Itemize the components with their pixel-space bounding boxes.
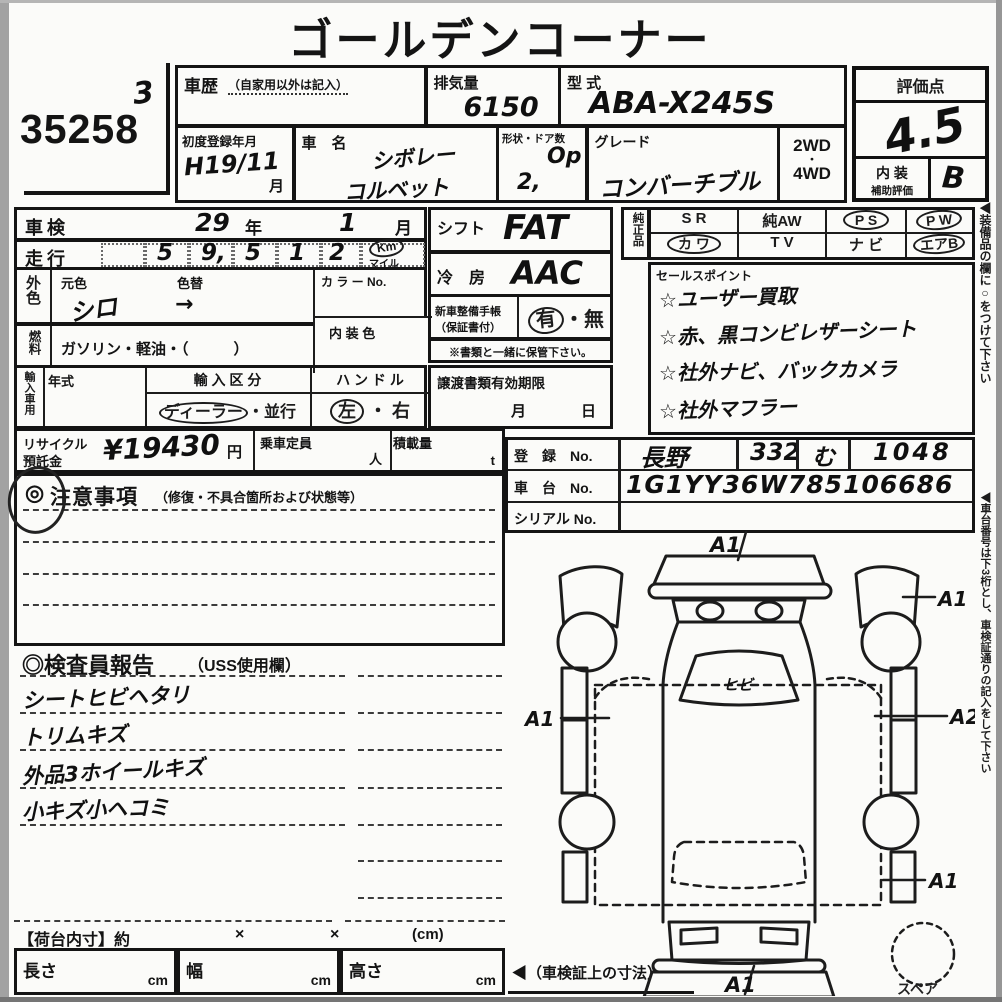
equipment-row-1: S R 純AW P S P W bbox=[651, 210, 972, 234]
field-fuel: 燃料 ガソリン・軽油・（ ） 内 装 色 bbox=[14, 323, 427, 368]
cautions-box: ◎ 注意事項 （修復・不具合箇所および状態等） bbox=[14, 473, 505, 646]
side-note-2: ◀車台番号は下3桁とし、車検証通りの記入をして下さい bbox=[979, 492, 1000, 802]
field-car-name: 車 名 シボレー コルベット bbox=[293, 125, 499, 203]
field-transfer-docs: 譲渡書類有効期限 月 日 bbox=[428, 365, 613, 429]
report-line bbox=[358, 787, 502, 789]
sales-points-box: セールスポイント ☆ユーザー買取 ☆赤、黒コンビレザーシート ☆社外ナビ、バック… bbox=[648, 262, 975, 435]
divider bbox=[618, 440, 621, 469]
auction-number: 35258 bbox=[20, 106, 139, 153]
sales-item: ☆ユーザー買取 bbox=[659, 280, 797, 314]
reg-kana: む bbox=[812, 438, 835, 472]
load-cell: 積載量 t bbox=[388, 431, 503, 470]
equip-airbag-circled: エアB bbox=[913, 232, 966, 256]
scan-edge-top bbox=[0, 0, 1002, 3]
report-line bbox=[358, 749, 502, 751]
times-sign: × bbox=[330, 926, 339, 944]
interior-color-cell: 内 装 色 bbox=[313, 316, 432, 373]
car-name-1: シボレー bbox=[369, 138, 455, 175]
color-change-value: → bbox=[175, 292, 193, 317]
import-label-cell: 輸入車用 bbox=[17, 368, 45, 426]
ruled-line bbox=[345, 920, 505, 922]
shaken-month: 1 bbox=[339, 208, 356, 237]
import-dealer-circled: ディーラー bbox=[159, 402, 248, 424]
body-doors-opt: Op bbox=[547, 144, 581, 169]
grade-value: コンバーチブル bbox=[598, 161, 761, 203]
field-recycle: リサイクル 預託金 ¥19430 円 乗車定員 人 積載量 t bbox=[14, 428, 505, 473]
field-body-doors: 形状・ドア数 Op 2, bbox=[496, 125, 588, 203]
length-cell: 長さ cm bbox=[14, 948, 177, 995]
divider bbox=[618, 471, 621, 501]
mileage-digit: 5 bbox=[157, 240, 173, 266]
year-type-cell: 年式 bbox=[43, 368, 147, 426]
width-cell: 幅 cm bbox=[177, 948, 340, 995]
equip-airbag: エアB bbox=[907, 234, 972, 258]
ruled-line bbox=[14, 920, 332, 922]
sales-item: ☆社外マフラー bbox=[659, 391, 798, 425]
handle-value: 左 ・ 右 bbox=[310, 397, 430, 424]
field-service-book: 新車整備手帳 （保証書付） 有・無 bbox=[428, 294, 613, 340]
book-yes-circled: 有 bbox=[527, 305, 566, 336]
shift-value: FAT bbox=[503, 208, 568, 248]
times-sign: × bbox=[235, 926, 244, 944]
field-displacement: 排気量 6150 bbox=[425, 65, 561, 127]
fuel-value: ガソリン・軽油・（ ） bbox=[61, 338, 249, 359]
handle-left-circled: 左 bbox=[330, 399, 364, 424]
equip-pw: P W bbox=[907, 210, 972, 232]
book-value: 有・無 bbox=[517, 297, 613, 337]
reg-area: 長野 bbox=[640, 438, 688, 473]
report-line bbox=[358, 712, 502, 714]
registration-box: 登 録 No. 長野 332 む 1048 車 台 No. 1G1YY36W78… bbox=[505, 437, 975, 533]
score-label: 評価点 bbox=[856, 70, 985, 103]
field-mileage: 走行 5 9, 5 1 2 Km マイル bbox=[14, 239, 427, 270]
equip-ps: P S bbox=[827, 210, 907, 232]
field-grade: グレード コンバーチブル bbox=[586, 125, 780, 203]
report-line bbox=[358, 824, 502, 826]
equip-ps-circled: P S bbox=[843, 210, 889, 230]
field-ac: 冷 房 AAC bbox=[428, 251, 613, 297]
ruled-line bbox=[23, 573, 495, 575]
recycle-value: ¥19430 bbox=[102, 427, 220, 466]
equip-aw: 純AW bbox=[739, 210, 827, 232]
interior-row: 内 装 補助評価 B bbox=[856, 156, 986, 202]
divider bbox=[736, 440, 739, 469]
damage-mark-rear: A1 bbox=[723, 973, 756, 996]
report-line bbox=[358, 897, 502, 899]
ac-value: AAC bbox=[511, 254, 583, 292]
bracket-hline bbox=[24, 191, 170, 195]
report-line bbox=[20, 675, 345, 677]
auction-sheet: ゴールデンコーナー 3 35258 車歴 （自家用以外は記入） 排気量 6150… bbox=[0, 0, 1002, 1002]
report-item: トリムキズ bbox=[22, 718, 128, 752]
equipment-grid: S R 純AW P S P W カ ワ T V ナ ビ エアB bbox=[648, 207, 975, 260]
divider bbox=[848, 440, 851, 469]
divider bbox=[618, 503, 621, 531]
inspector-report: ◎検査員報告 （USS使用欄） シートヒビヘタリ トリムキズ 外品3ホイールキズ… bbox=[0, 648, 505, 918]
height-cell: 高さ cm bbox=[340, 948, 505, 995]
field-model-code: 型 式 ABA-X245S bbox=[558, 65, 847, 127]
windshield-crack-note: ヒビ bbox=[723, 676, 755, 694]
reg-number: 1048 bbox=[873, 438, 952, 466]
field-history: 車歴 （自家用以外は記入） bbox=[175, 65, 427, 127]
import-class-cell: 輸 入 区 分 ディーラー・並行 bbox=[145, 368, 312, 426]
equip-navi: ナ ビ bbox=[827, 234, 907, 258]
sales-item: ☆社外ナビ、バックカメラ bbox=[659, 353, 897, 386]
genuine-label-cell: 純正品 bbox=[621, 207, 650, 260]
field-import: 輸入車用 年式 輸 入 区 分 ディーラー・並行 ハ ン ド ル 左 ・ 右 bbox=[14, 365, 427, 429]
body-doors-num: 2, bbox=[517, 170, 541, 195]
spare-label: スペア bbox=[897, 981, 938, 996]
cargo-label: 【荷台内寸】約 bbox=[18, 926, 130, 950]
chassis-value: 1G1YY36W785106686 bbox=[626, 470, 953, 499]
damage-mark-right-front: A1 bbox=[936, 587, 967, 611]
car-damage-diagram: A1 A1 A1 A2 A1 A1 ヒビ スペア bbox=[503, 530, 975, 996]
keep-note: ※書類と一緒に保管下さい。 bbox=[428, 338, 613, 363]
mileage-digit: 1 bbox=[289, 240, 305, 266]
interior-value: B bbox=[941, 160, 966, 197]
report-item: 小キズ小ヘコミ bbox=[22, 791, 170, 826]
equip-tv: T V bbox=[739, 234, 827, 258]
color-no-cell: カ ラ ー No. bbox=[313, 270, 432, 322]
bracket-vline bbox=[166, 63, 170, 195]
shaken-year: 29 bbox=[195, 208, 230, 237]
scan-edge-bottom bbox=[0, 997, 1002, 1002]
divider bbox=[796, 440, 799, 469]
equip-sr: S R bbox=[651, 210, 739, 232]
equip-kawa: カ ワ bbox=[651, 234, 739, 258]
ruled-line bbox=[23, 509, 495, 511]
capacity-cell: 乗車定員 人 bbox=[253, 431, 392, 470]
sales-item: ☆赤、黒コンビレザーシート bbox=[659, 313, 917, 351]
sheet-title: ゴールデンコーナー bbox=[200, 4, 800, 68]
damage-mark-front: A1 bbox=[708, 533, 741, 557]
report-item: シートヒビヘタリ bbox=[22, 679, 191, 715]
digit-cell bbox=[101, 243, 145, 267]
displacement-value: 6150 bbox=[464, 92, 539, 123]
damage-mark-left: A1 bbox=[523, 707, 554, 731]
field-first-registration: 初度登録年月 H19/11 月 bbox=[175, 125, 295, 203]
field-drive: 2WD ・ 4WD bbox=[777, 125, 847, 203]
handle-cell: ハ ン ド ル 左 ・ 右 bbox=[310, 368, 430, 426]
fuel-label-cell: 燃料 bbox=[17, 326, 52, 365]
mileage-digit: 2 bbox=[329, 240, 345, 266]
reg-row: 登 録 No. 長野 332 む 1048 bbox=[508, 440, 972, 471]
damage-mark-right: A2 bbox=[948, 705, 975, 729]
report-item: 外品3ホイールキズ bbox=[21, 751, 205, 791]
mileage-digit: 9, bbox=[201, 240, 226, 266]
ruled-line bbox=[23, 541, 495, 543]
report-line bbox=[358, 675, 502, 677]
score-box: 評価点 4.5 内 装 補助評価 B bbox=[852, 66, 989, 202]
equip-pw-circled: P W bbox=[916, 208, 964, 232]
reg-class: 332 bbox=[750, 438, 800, 466]
serial-row: シリアル No. bbox=[508, 503, 972, 531]
mileage-digit: 5 bbox=[245, 240, 261, 266]
ruled-line bbox=[23, 604, 495, 606]
field-shaken: 車検 29 年 1 月 bbox=[14, 207, 427, 241]
report-line bbox=[358, 860, 502, 862]
interior-label-cell: 内 装 補助評価 bbox=[856, 159, 931, 202]
import-class-value: ディーラー・並行 bbox=[145, 398, 310, 424]
damage-mark-right-rear: A1 bbox=[927, 869, 958, 893]
equip-kawa-circled: カ ワ bbox=[667, 234, 721, 254]
ext-color-label-cell: 外色 bbox=[17, 270, 52, 322]
field-shift: シフト FAT bbox=[428, 207, 613, 253]
model-code-value: ABA-X245S bbox=[589, 86, 775, 121]
history-note: （自家用以外は記入） bbox=[228, 76, 348, 95]
car-name-2: コルベット bbox=[343, 171, 449, 206]
first-reg-value: H19/11 bbox=[183, 146, 280, 181]
equipment-row-2: カ ワ T V ナ ビ エアB bbox=[651, 234, 972, 258]
chassis-row: 車 台 No. 1G1YY36W785106686 bbox=[508, 471, 972, 503]
side-note-1: ◀装備品の欄に○をつけて下さい bbox=[979, 202, 1000, 484]
